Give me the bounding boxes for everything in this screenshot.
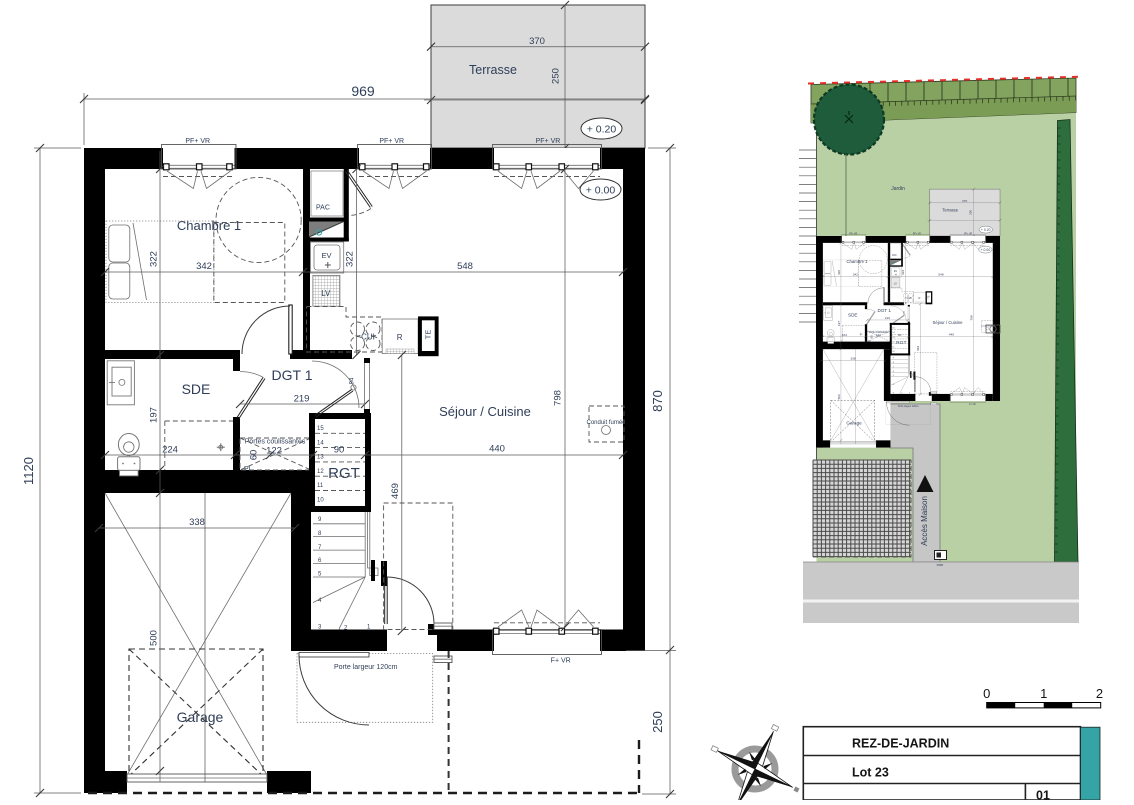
svg-text:90: 90 (334, 445, 345, 456)
svg-text:469: 469 (390, 483, 401, 499)
svg-text:Porte largeur 120cm: Porte largeur 120cm (334, 664, 398, 671)
svg-text:1120: 1120 (21, 457, 36, 485)
svg-text:342: 342 (196, 261, 212, 272)
svg-text:14: 14 (317, 440, 324, 446)
svg-text:219: 219 (294, 394, 310, 405)
svg-text:13: 13 (317, 455, 324, 461)
svg-text:SDE: SDE (182, 381, 211, 397)
svg-text:322: 322 (345, 251, 356, 267)
svg-text:Pl.: Pl. (244, 466, 252, 473)
svg-text:1: 1 (1040, 686, 1047, 701)
svg-text:60: 60 (249, 450, 260, 461)
svg-text:CUI: CUI (361, 333, 375, 342)
svg-text:870: 870 (650, 390, 665, 412)
svg-text:548: 548 (457, 261, 473, 272)
svg-text:440: 440 (489, 444, 505, 455)
svg-text:Conduit fumée: Conduit fumée (586, 420, 626, 426)
svg-text:Portes coulissantes: Portes coulissantes (245, 439, 306, 446)
svg-text:01: 01 (1036, 789, 1050, 801)
svg-text:PMR: PMR (937, 563, 945, 567)
svg-text:94: 94 (350, 377, 356, 384)
svg-text:322: 322 (149, 251, 160, 267)
svg-text:250: 250 (551, 68, 562, 84)
svg-text:370: 370 (529, 36, 545, 47)
svg-text:PAC: PAC (316, 205, 330, 212)
svg-text:Lot 23: Lot 23 (852, 766, 889, 780)
svg-text:197: 197 (149, 407, 160, 423)
svg-text:PF+ VR: PF+ VR (379, 138, 404, 145)
svg-text:Garage: Garage (177, 709, 224, 725)
svg-text:EV: EV (321, 251, 331, 260)
svg-text:Chambre 1: Chambre 1 (177, 218, 241, 233)
svg-text:798: 798 (553, 390, 564, 406)
svg-text:338: 338 (189, 517, 205, 528)
svg-text:250: 250 (650, 711, 665, 733)
svg-text:+ 0.00: + 0.00 (586, 185, 616, 197)
svg-text:224: 224 (162, 445, 178, 456)
svg-text:Jardin: Jardin (891, 186, 905, 192)
svg-text:F+ VR: F+ VR (551, 658, 571, 665)
svg-text:15: 15 (317, 426, 324, 432)
svg-text:TE: TE (424, 330, 433, 340)
svg-text:DGT 1: DGT 1 (272, 367, 313, 383)
svg-text:Séjour / Cuisine: Séjour / Cuisine (439, 404, 531, 419)
svg-text:REZ-DE-JARDIN: REZ-DE-JARDIN (852, 737, 949, 751)
svg-text:R: R (397, 333, 403, 342)
svg-text:10: 10 (317, 498, 324, 504)
svg-text:122: 122 (266, 446, 282, 457)
svg-text:969: 969 (351, 83, 375, 99)
svg-text:PF+ VR: PF+ VR (536, 138, 561, 145)
svg-text:0: 0 (983, 686, 990, 701)
svg-text:500: 500 (149, 630, 160, 646)
svg-text:PF+ VR: PF+ VR (185, 138, 210, 145)
svg-text:LV: LV (321, 289, 331, 298)
svg-text:Accès Maison: Accès Maison (920, 496, 929, 546)
svg-text:11: 11 (317, 483, 324, 489)
svg-text:+ 0.20: + 0.20 (587, 124, 617, 136)
svg-text:2: 2 (1096, 686, 1103, 701)
svg-text:Terrasse: Terrasse (469, 63, 517, 77)
svg-text:12: 12 (317, 469, 324, 475)
svg-text:RGT: RGT (328, 465, 360, 482)
